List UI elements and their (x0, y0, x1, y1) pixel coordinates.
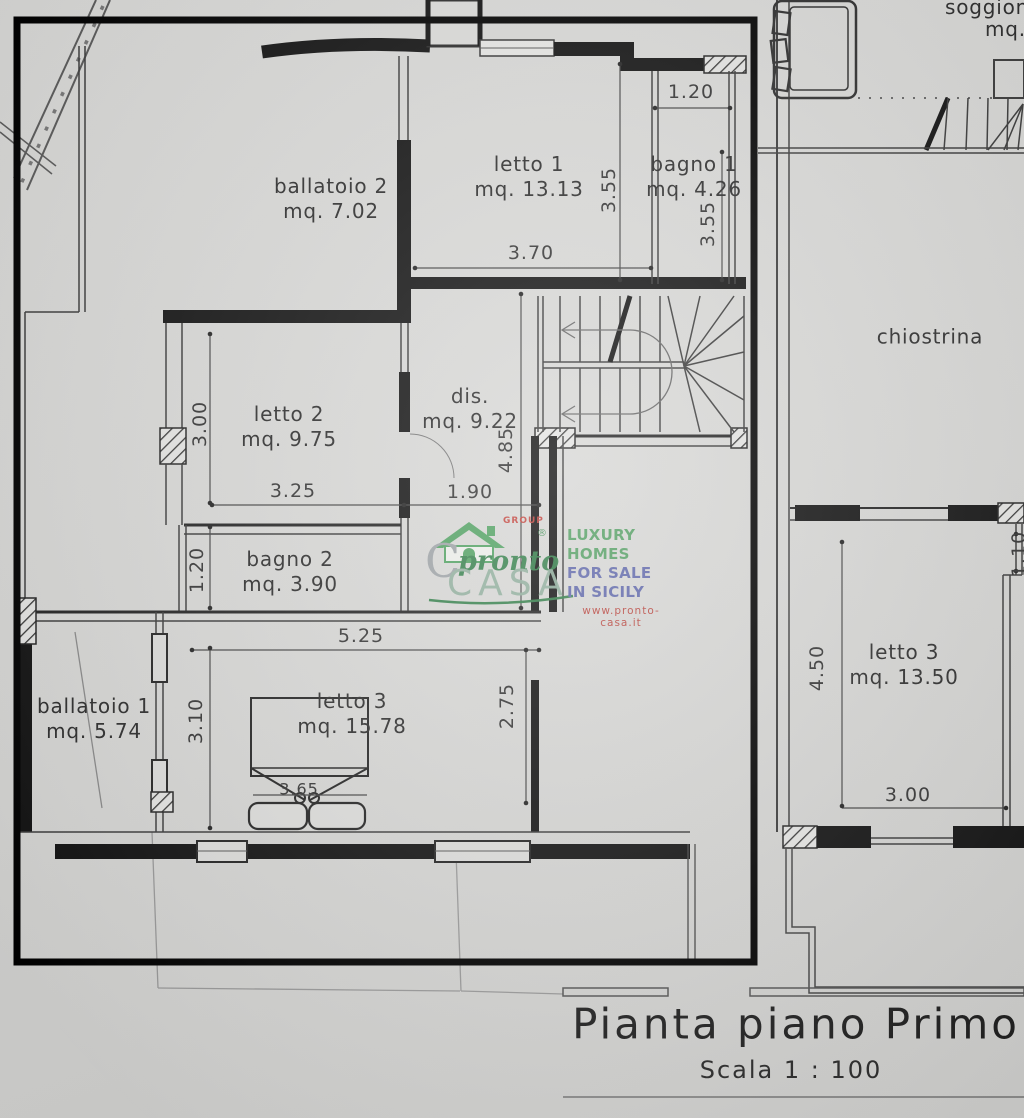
room-area: mq. 13.13 (474, 177, 583, 201)
room-label-ballatoio-1: ballatoio 1 mq. 5.74 (37, 694, 151, 744)
room-area: mq. 3.90 (242, 572, 338, 596)
dim-label-4-85: 4.85 (495, 427, 517, 473)
room-area: mq. 4.26 (646, 177, 742, 201)
dim-label-5-25: 5.25 (338, 625, 384, 647)
sofa (771, 1, 856, 98)
plan-title: Pianta piano Primo (572, 1000, 1020, 1049)
room-name: letto 3 (869, 640, 939, 664)
watermark-group-label: GROUP (503, 516, 544, 526)
watermark-url: www.pronto-casa.it (567, 605, 675, 629)
room-name: letto 2 (254, 402, 324, 426)
dim-label-3-70: 3.70 (508, 242, 554, 264)
stairs-right (926, 60, 1024, 150)
dim-label-3-55-letto1: 3.55 (598, 167, 620, 213)
floorplan-scan: ballatoio 2 mq. 7.02 letto 1 mq. 13.13 b… (0, 0, 1024, 1118)
room-name: letto 1 (494, 152, 564, 176)
room-name: ballatoio 1 (37, 694, 151, 718)
room-area: mq. 15.78 (297, 714, 406, 738)
dim-label-2-75: 2.75 (496, 683, 518, 729)
room-label-letto-3: letto 3 mq. 15.78 (297, 689, 406, 739)
dim-label-3-65: 3.65 (279, 780, 319, 799)
room-label-soggiorno: soggiono— mq. 3 (945, 0, 1024, 40)
staircase (538, 296, 744, 432)
flag-bar (569, 633, 669, 640)
dim-label-3-00-right: 3.00 (885, 784, 931, 806)
dim-label-3-10: 3.10 (185, 698, 207, 744)
dim-label-3-55-bagno1: 3.55 (697, 201, 719, 247)
room-label-bagno-1: bagno 1 mq. 4.26 (646, 152, 742, 202)
registered-mark: ® (537, 528, 547, 539)
room-name: bagno 2 (246, 547, 333, 571)
walls-right-unit (758, 0, 1024, 993)
tagline-line2: FOR SALE IN SICILY (567, 564, 675, 602)
dim-label-3-25: 3.25 (270, 480, 316, 502)
room-area: mq. 7.02 (283, 199, 379, 223)
tagline-line1: LUXURY HOMES (567, 526, 675, 564)
selection-frame (17, 20, 754, 962)
room-label-ballatoio-2: ballatoio 2 mq. 7.02 (274, 174, 388, 224)
dim-label-1-10: 1.10 (1008, 531, 1024, 577)
room-name: letto 3 (317, 689, 387, 713)
room-area: mq. 3 (945, 18, 1024, 40)
room-label-letto-1: letto 1 mq. 13.13 (474, 152, 583, 202)
watermark-logo: GROUP ® C pronto CASA LUXURY HOMES FOR S… (425, 514, 675, 600)
plan-scale: Scala 1 : 100 (700, 1056, 883, 1084)
room-name: chiostrina (877, 325, 983, 349)
room-area: mq. 5.74 (46, 719, 142, 743)
room-label-bagno-2: bagno 2 mq. 3.90 (242, 547, 338, 597)
dim-label-3-00-letto2: 3.00 (189, 401, 211, 447)
watermark-tagline: LUXURY HOMES FOR SALE IN SICILY www.pron… (567, 526, 675, 640)
room-label-chiostrina: chiostrina (877, 325, 983, 350)
room-name: dis. (451, 384, 489, 408)
brand-swoosh (427, 594, 577, 608)
room-name: ballatoio 2 (274, 174, 388, 198)
room-area: mq. 9.75 (241, 427, 337, 451)
dim-label-1-20-top: 1.20 (668, 81, 714, 103)
dim-label-4-50: 4.50 (806, 645, 828, 691)
room-name: bagno 1 (650, 152, 737, 176)
room-label-letto-3-right: letto 3 mq. 13.50 (849, 640, 958, 690)
room-label-letto-2: letto 2 mq. 9.75 (241, 402, 337, 452)
dim-label-1-20-bagno2: 1.20 (186, 547, 208, 593)
dim-label-1-90: 1.90 (447, 481, 493, 503)
room-area: mq. 13.50 (849, 665, 958, 689)
walls-left-unit (16, 0, 747, 962)
